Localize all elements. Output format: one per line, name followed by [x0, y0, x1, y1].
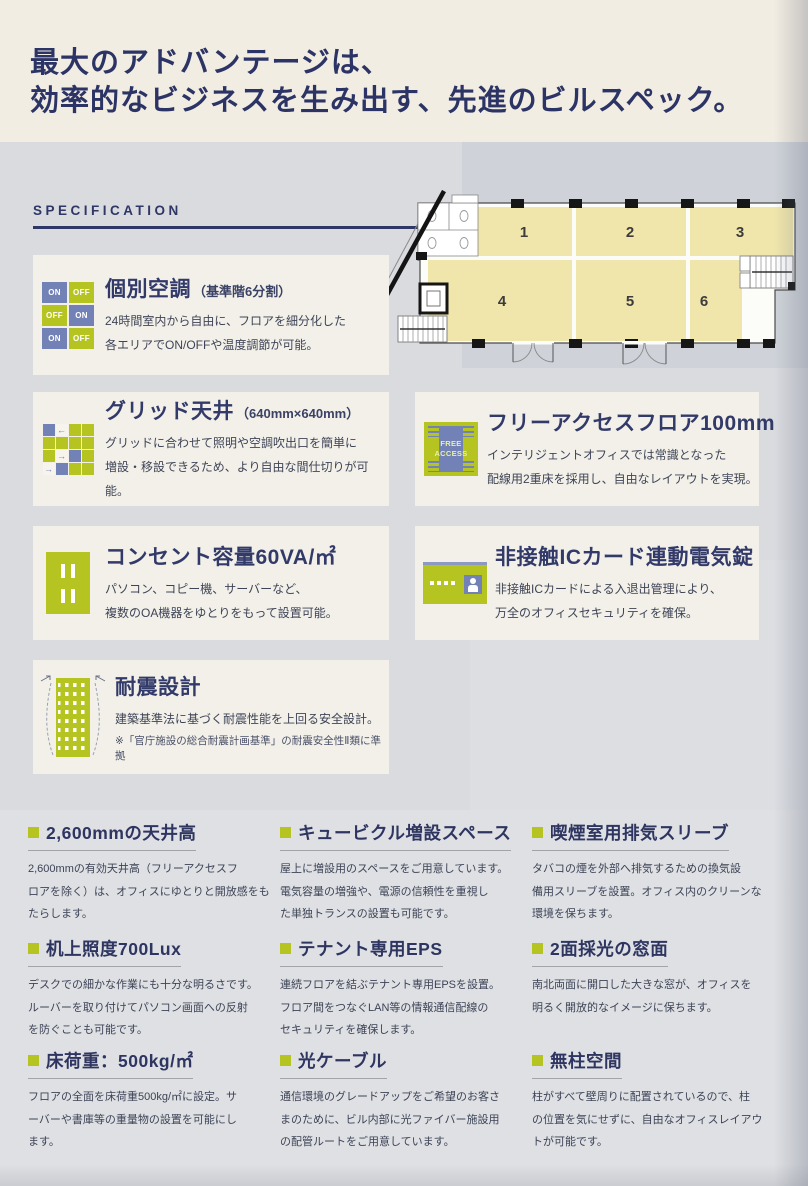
feature-box-individual-hvac: ON OFF OFF ON ON OFF 個別空調 （基準階6分割） 24時間室… [33, 255, 389, 375]
floor-plan: 1 2 3 4 5 6 [372, 190, 804, 380]
bullet-square-icon [280, 1055, 291, 1066]
spec-item-body: 屋上に増設用のスペースをご用意しています。 電気容量の増強や、電源の信頼性を重視… [280, 858, 530, 926]
spec-item-floor-load: 床荷重：500kg/㎡ フロアの全面を床荷重500kg/㎡に設定。サ ーバーや書… [28, 1048, 266, 1154]
spec-item-body: 南北両面に開口した大きな窓が、オフィスを 明るく開放的なイメージに保ちます。 [532, 974, 782, 1019]
spec-grid: 2,600mmの天井高 2,600mmの有効天井高（フリーアクセスフ ロアを除く… [28, 820, 780, 1154]
free-access-label: FREE ACCESS [424, 422, 478, 476]
bullet-square-icon [28, 827, 39, 838]
section-heading: SPECIFICATION [33, 203, 182, 218]
spec-item-optical-cable: 光ケーブル 通信環境のグレードアップをご希望のお客さ まのために、ビル内部に光フ… [280, 1048, 518, 1154]
zone-label-4: 4 [498, 293, 507, 310]
page-edge-shadow [774, 0, 808, 1186]
spec-item-body: 連続フロアを結ぶテナント専用EPSを設置。 フロア間をつなぐLAN等の情報通信配… [280, 974, 530, 1042]
spec-item-body: 2,600mmの有効天井高（フリーアクセスフ ロアを除く）は、オフィスにゆとりと… [28, 858, 278, 926]
feature-title-note: （640mm×640mm） [236, 403, 359, 422]
feature-body: グリッドに合わせて照明や空調吹出口を簡単に 増設・移設できるため、より自由な間仕… [105, 431, 387, 503]
page-title: 最大のアドバンテージは、 効率的なビジネスを生み出す、先進のビルスペック。 [30, 44, 743, 120]
feature-body: 非接触ICカードによる入退出管理により、 万全のオフィスセキュリティを確保。 [495, 577, 759, 625]
zone-label-1: 1 [520, 224, 528, 241]
power-outlet-icon [39, 552, 97, 614]
page-edge-shadow [0, 1164, 808, 1186]
zone-label-3: 3 [736, 224, 744, 241]
bullet-square-icon [28, 1055, 39, 1066]
section-rule [33, 226, 418, 229]
spec-item-body: 通信環境のグレードアップをご希望のお客さ まのために、ビル内部に光ファイバー施設… [280, 1086, 530, 1154]
grid-ceiling-icon [39, 424, 97, 475]
bullet-square-icon [532, 1055, 543, 1066]
spec-item-title: 2,600mmの天井高 [28, 820, 196, 851]
feature-body: パソコン、コピー機、サーバーなど、 複数のOA機器をゆとりをもって設置可能。 [105, 577, 387, 625]
feature-body: インテリジェントオフィスでは常識となった 配線用2重床を採用し、自由なレイアウト… [487, 443, 759, 491]
bullet-square-icon [532, 827, 543, 838]
spec-item-tenant-eps: テナント専用EPS 連続フロアを結ぶテナント専用EPSを設置。 フロア間をつなぐ… [280, 936, 518, 1048]
feature-title: コンセント容量60VA/㎡ [105, 541, 336, 571]
zone-label-2: 2 [626, 224, 634, 241]
on-off-switch-grid-icon: ON OFF OFF ON ON OFF [39, 282, 97, 349]
onoff-cell: OFF [69, 282, 94, 303]
page-title-line2: 効率的なビジネスを生み出す、先進のビルスペック。 [30, 82, 743, 120]
spec-item-title: 無柱空間 [532, 1048, 622, 1079]
spec-item-title: 机上照度700Lux [28, 936, 181, 967]
bullet-square-icon [280, 943, 291, 954]
spec-item-title: 光ケーブル [280, 1048, 387, 1079]
feature-title: 個別空調 [105, 273, 191, 303]
person-icon [464, 575, 482, 594]
feature-title: グリッド天井 [105, 395, 234, 425]
feature-title: 耐震設計 [115, 671, 201, 701]
spec-item-body: 柱がすべて壁周りに配置されているので、柱 の位置を気にせずに、自由なオフィスレイ… [532, 1086, 782, 1154]
spec-item-body: デスクでの細かな作業にも十分な明るさです。 ルーバーを取り付けてパソコン画面への… [28, 974, 278, 1042]
feature-box-outlet-capacity: コンセント容量60VA/㎡ パソコン、コピー機、サーバーなど、 複数のOA機器を… [33, 526, 389, 640]
feature-box-free-access-floor: FREE ACCESS フリーアクセスフロア100mm インテリジェントオフィス… [415, 392, 759, 506]
feature-box-seismic-design: 耐震設計 建築基準法に基づく耐震性能を上回る安全設計。 ※「官庁施設の総合耐震計… [33, 660, 389, 774]
brochure-page: 最大のアドバンテージは、 効率的なビジネスを生み出す、先進のビルスペック。 SP… [0, 0, 808, 1186]
feature-title: フリーアクセスフロア100mm [487, 407, 775, 437]
spec-item-title: 床荷重：500kg/㎡ [28, 1048, 193, 1079]
spec-item-column-free-space: 無柱空間 柱がすべて壁周りに配置されているので、柱 の位置を気にせずに、自由なオ… [532, 1048, 772, 1154]
floor-plan-drawing: 1 2 3 4 5 6 [372, 190, 804, 380]
feature-body: 建築基準法に基づく耐震性能を上回る安全設計。 [115, 707, 389, 731]
free-access-floor-icon: FREE ACCESS [423, 422, 479, 476]
feature-footnote: ※「官庁施設の総合耐震計画基準」の耐震安全性Ⅱ類に準拠 [115, 733, 389, 763]
spec-item-desk-illuminance: 机上照度700Lux デスクでの細かな作業にも十分な明るさです。 ルーバーを取り… [28, 936, 266, 1048]
onoff-cell: ON [42, 282, 67, 303]
feature-title: 非接触ICカード連動電気錠 [495, 541, 754, 571]
zone-label-6: 6 [700, 293, 708, 310]
spec-item-title: 2面採光の窓面 [532, 936, 668, 967]
zone-label-5: 5 [626, 293, 634, 310]
spec-item-body: フロアの全面を床荷重500kg/㎡に設定。サ ーバーや書庫等の重量物の設置を可能… [28, 1086, 278, 1154]
onoff-cell: ON [42, 328, 67, 349]
bullet-square-icon [280, 827, 291, 838]
spec-item-title: テナント専用EPS [280, 936, 443, 967]
spec-item-body: タバコの煙を外部へ排気するための換気設 備用スリーブを設置。オフィス内のクリーン… [532, 858, 782, 926]
spec-item-cubicle-space: キュービクル増設スペース 屋上に増設用のスペースをご用意しています。 電気容量の… [280, 820, 518, 936]
ic-card-icon [423, 562, 487, 604]
spec-item-smoking-exhaust: 喫煙室用排気スリーブ タバコの煙を外部へ排気するための換気設 備用スリーブを設置… [532, 820, 772, 936]
feature-title-note: （基準階6分割） [193, 281, 291, 300]
bullet-square-icon [28, 943, 39, 954]
spec-item-title: キュービクル増設スペース [280, 820, 511, 851]
spec-item-two-sided-windows: 2面採光の窓面 南北両面に開口した大きな窓が、オフィスを 明るく開放的なイメージ… [532, 936, 772, 1048]
page-title-line1: 最大のアドバンテージは、 [30, 44, 743, 82]
onoff-cell: ON [69, 305, 94, 326]
bullet-square-icon [532, 943, 543, 954]
feature-box-ic-card-lock: 非接触ICカード連動電気錠 非接触ICカードによる入退出管理により、 万全のオフ… [415, 526, 759, 640]
seismic-building-icon [39, 671, 107, 763]
spec-item-title: 喫煙室用排気スリーブ [532, 820, 729, 851]
onoff-cell: OFF [69, 328, 94, 349]
onoff-cell: OFF [42, 305, 67, 326]
spec-item-ceiling-height: 2,600mmの天井高 2,600mmの有効天井高（フリーアクセスフ ロアを除く… [28, 820, 266, 936]
feature-box-grid-ceiling: グリッド天井 （640mm×640mm） グリッドに合わせて照明や空調吹出口を簡… [33, 392, 389, 506]
feature-body: 24時間室内から自由に、フロアを細分化した 各エリアでON/OFFや温度調節が可… [105, 309, 387, 357]
